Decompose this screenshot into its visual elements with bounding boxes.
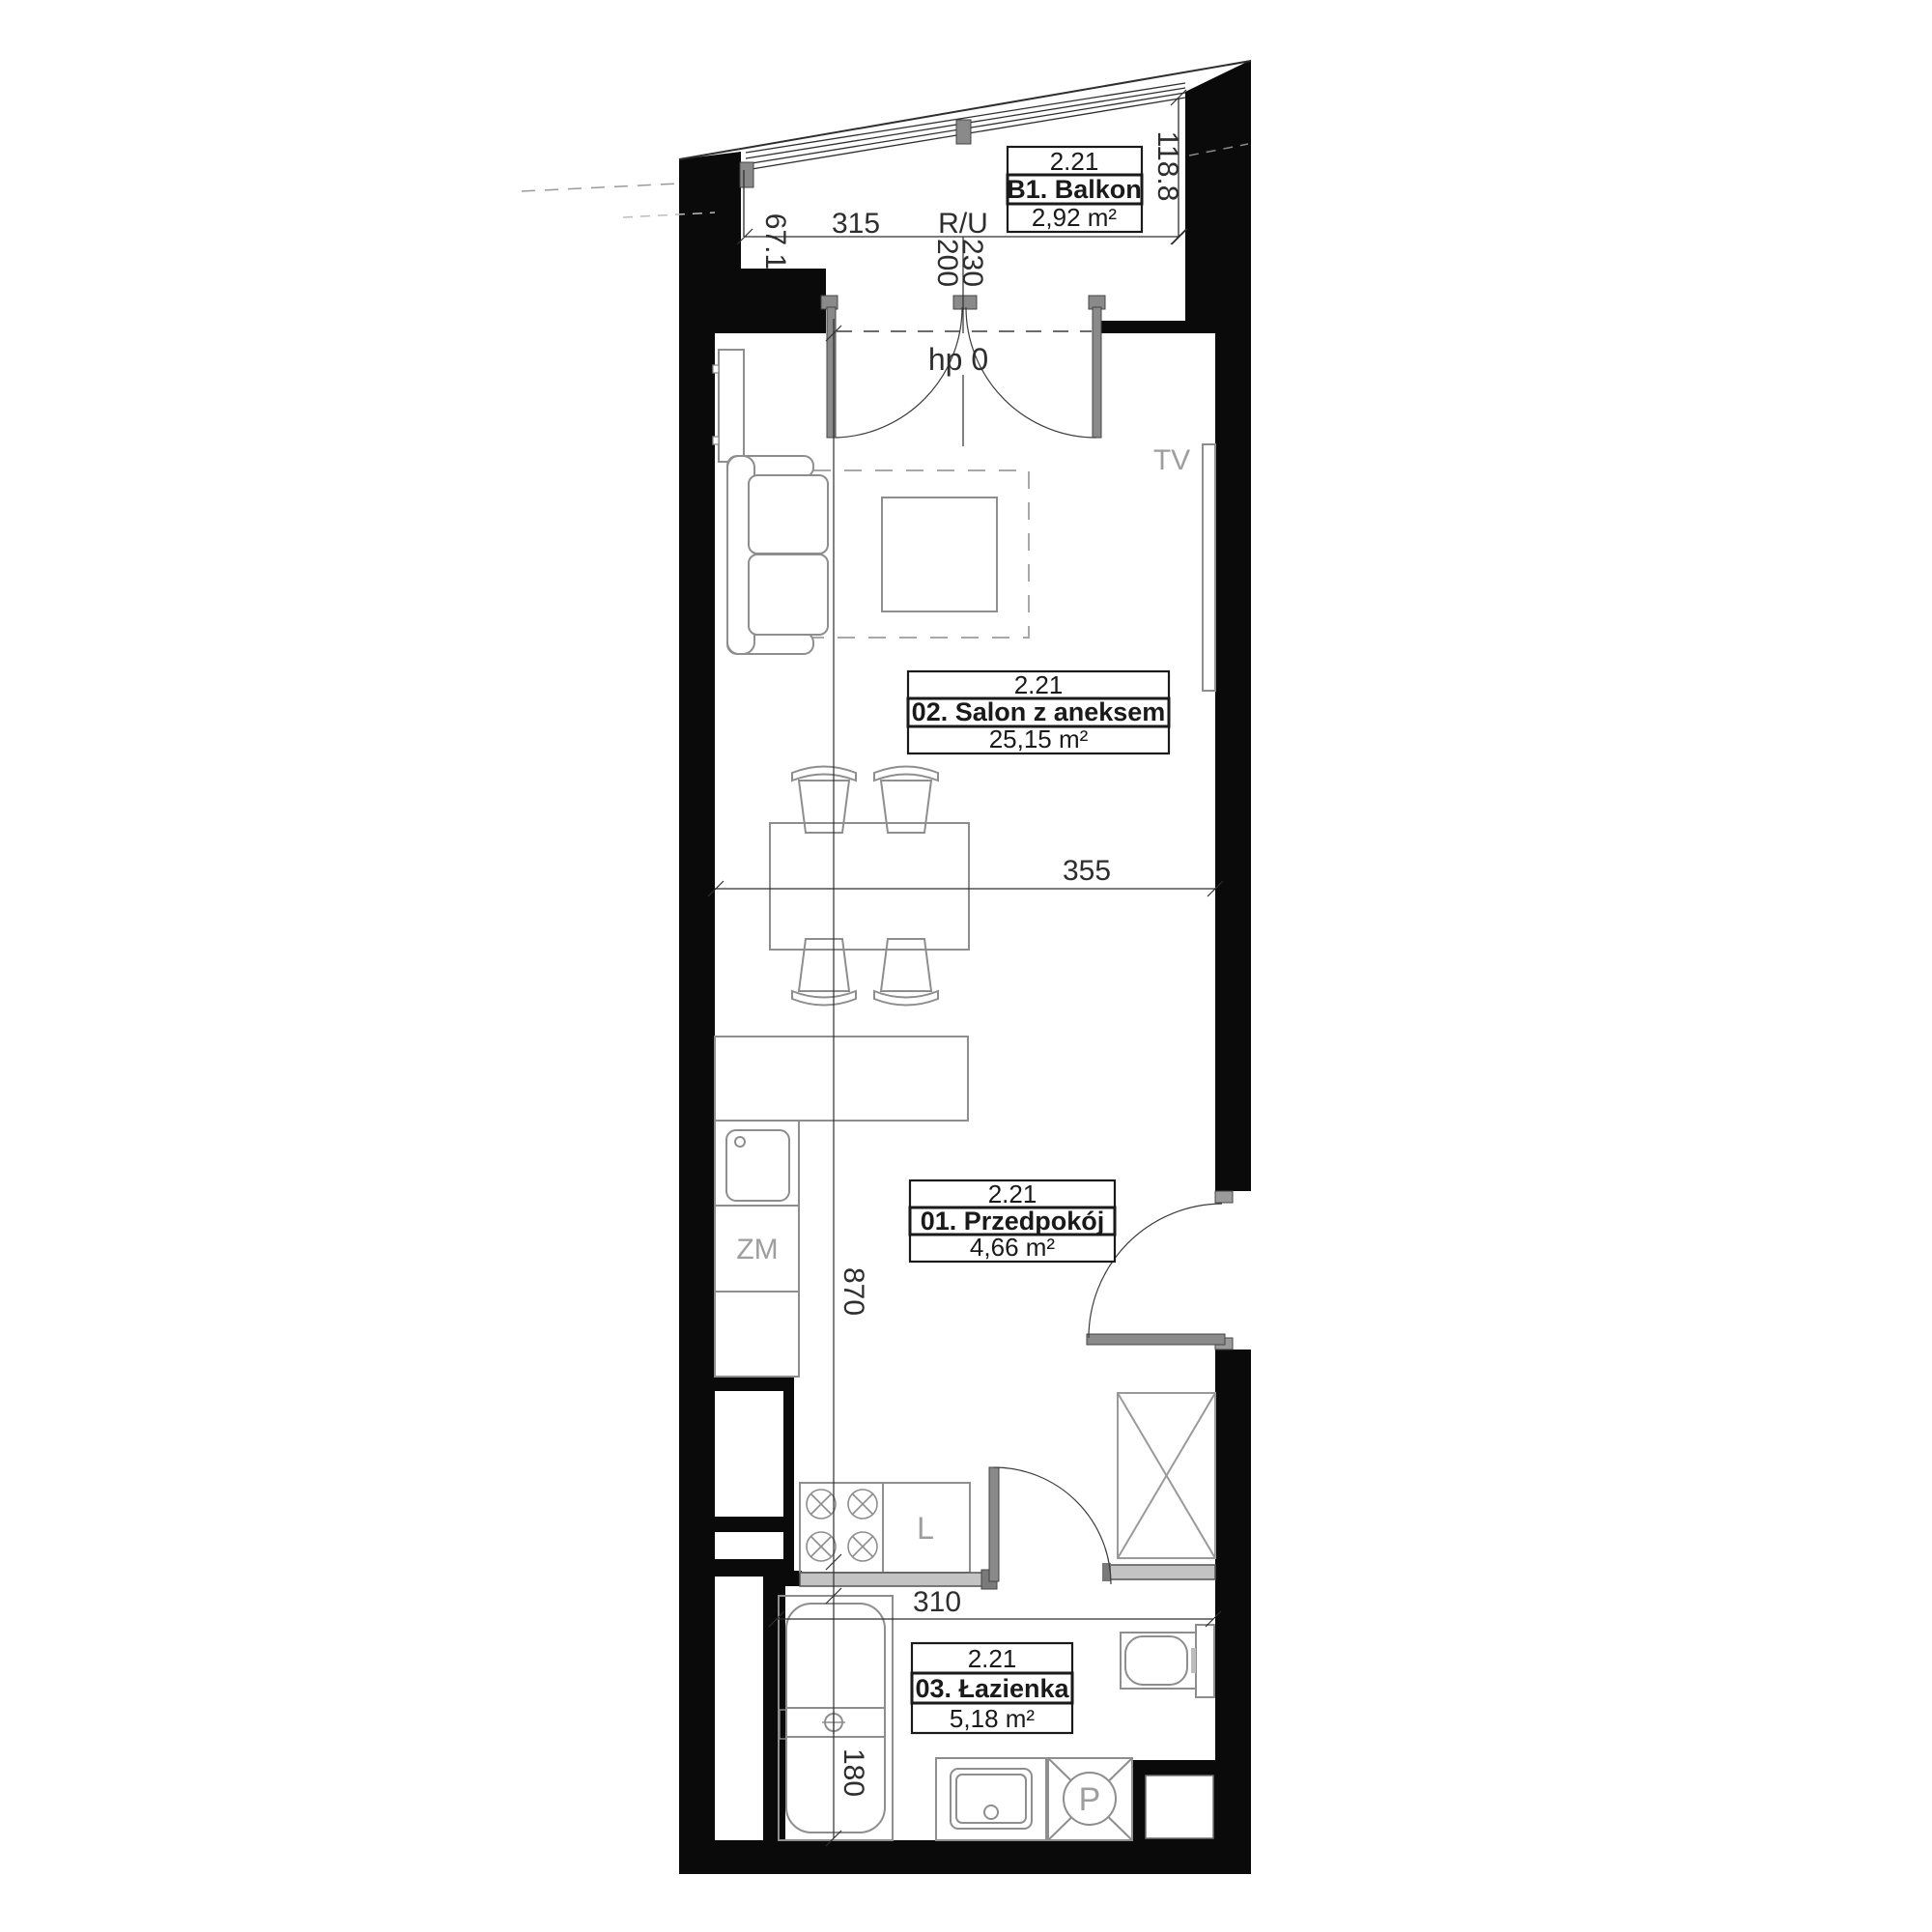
dim-230: 230 [956, 239, 988, 287]
railing-post-left [740, 162, 753, 187]
sink-tap [735, 1137, 745, 1147]
dim-apartment-length: 870 [838, 1267, 869, 1316]
floor-plan-svg: 315 R/U 67.1 118.8 200 230 hp 0 355 870 … [0, 0, 1932, 1932]
room-label-lazienka: 2.21 03. Łazienka 5,18 m² [912, 1643, 1072, 1733]
wall-shaft-divider-3 [715, 1559, 784, 1577]
entry-door-leaf [1087, 1334, 1225, 1345]
counter-screen [800, 1573, 983, 1586]
hob-burners [807, 1490, 877, 1561]
room-label-salon: 2.21 02. Salon z aneksem 25,15 m² [908, 670, 1169, 753]
sideboard [719, 350, 744, 462]
dishwasher-label: ZM [736, 1234, 778, 1265]
bathroom-door-leaf [989, 1467, 999, 1581]
room-unit: 2.21 [1014, 670, 1064, 699]
dim-bathtub-length: 180 [838, 1748, 869, 1797]
sideboard-knob [713, 437, 719, 444]
door-leaf-right [1093, 307, 1101, 438]
wall-living-top-left [679, 269, 826, 333]
balcony-note: R/U [938, 208, 988, 240]
bathtub [779, 1596, 893, 1840]
dim-living-width: 355 [1063, 855, 1111, 887]
room-area: 4,66 m² [970, 1233, 1055, 1262]
toilet [1121, 1625, 1214, 1697]
room-name: B1. Balkon [1007, 175, 1142, 204]
room-name: 01. Przedpokój [921, 1207, 1105, 1236]
railing-post-mid [956, 120, 971, 144]
bathroom-door [989, 1467, 1111, 1584]
wall-shaft-divider-1 [715, 1377, 794, 1391]
fridge-label: L [917, 1511, 934, 1546]
dim-balcony-left: 67.1 [759, 213, 791, 270]
hob-counter [800, 1483, 970, 1573]
wall-right-upper [1215, 333, 1251, 1191]
coffee-table [882, 497, 997, 611]
tv-label: TV [1153, 444, 1190, 476]
room-name: 03. Łazienka [915, 1674, 1069, 1703]
living-furniture [713, 350, 1215, 691]
room-label-przedpokoj: 2.21 01. Przedpokój 4,66 m² [910, 1179, 1115, 1262]
room-unit: 2.21 [988, 1179, 1037, 1208]
room-area: 25,15 m² [989, 724, 1089, 753]
wardrobe-threshold [1109, 1565, 1215, 1579]
wall-shaft-divider-2 [715, 1517, 794, 1532]
room-unit: 2.21 [1050, 147, 1099, 176]
dim-bathroom-width: 310 [913, 1586, 961, 1618]
wall-bath-column [763, 1577, 785, 1840]
door-post-center [953, 296, 977, 309]
shaft-bottom-right [1146, 1776, 1213, 1838]
floor-plan-page: 315 R/U 67.1 118.8 200 230 hp 0 355 870 … [0, 0, 1932, 1932]
room-name: 02. Salon z aneksem [912, 697, 1166, 726]
tv-cabinet [1203, 444, 1215, 691]
washbasin [936, 1758, 1046, 1840]
room-area: 5,18 m² [950, 1704, 1035, 1733]
sideboard-knob [713, 365, 719, 373]
room-area: 2,92 m² [1032, 203, 1117, 232]
wall-shaft-side [783, 1377, 794, 1586]
room-label-balkon: 2.21 B1. Balkon 2,92 m² [1007, 147, 1142, 232]
dim-balcony-width: 315 [832, 208, 880, 240]
walls [679, 60, 1251, 1874]
wall-balcony-right [1185, 60, 1251, 333]
door-leaf-left [827, 307, 836, 438]
room-unit: 2.21 [968, 1644, 1017, 1673]
sill-height-label: hp 0 [928, 342, 988, 377]
shower-label: P [1079, 1781, 1101, 1818]
dining-table [770, 823, 969, 950]
bathroom-door-swing [994, 1467, 1111, 1584]
dim-balcony-right: 118.8 [1151, 131, 1183, 202]
dining-set [770, 767, 969, 1006]
sofa [727, 456, 828, 654]
